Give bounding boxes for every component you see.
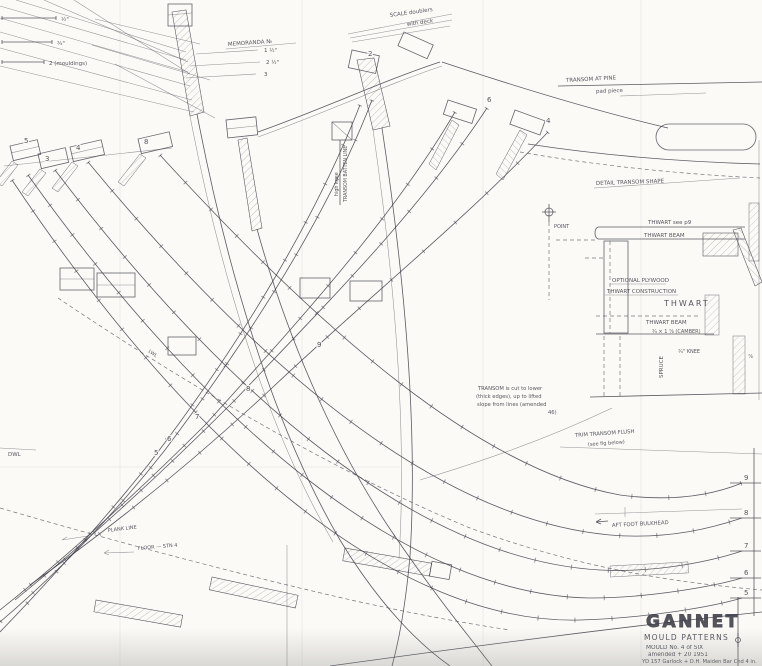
lofting-drawing: ½" ¾" 2 (mouldings) MEMORANDA № 1 ½" 2 ½… (0, 0, 762, 666)
thwart-construction-label: THWART CONSTRUCTION (606, 289, 676, 295)
edge-number-8: 8 (744, 509, 748, 517)
mould-pattern-curves-left (0, 100, 612, 632)
transom-cut-note: TRANSOM is cut to lower (thick edges), u… (476, 386, 557, 416)
trim-transom-note: TRIM TRANSOM FLUSH (see fig below) (560, 429, 762, 454)
cut-note-line1: TRANSOM is cut to lower (477, 386, 543, 392)
drawing-title: GANNET (646, 612, 740, 632)
memoranda-item-2: 2 ½" (266, 59, 279, 66)
plank-line-label: PLANK LINE (108, 524, 138, 534)
dimension-note-half-inch: ½" (61, 16, 69, 23)
cut-note-line3: slope from lines (amended (477, 402, 546, 408)
curve-number-6: 6 (167, 435, 172, 443)
curve-number-9: 9 (317, 341, 321, 349)
head-number-4b: 4 (546, 117, 551, 125)
thwart-see-label: THWART see p9 (647, 220, 692, 226)
pad-piece-label: pad piece (596, 88, 624, 95)
trim-note-line1: TRIM TRANSOM FLUSH (574, 429, 635, 439)
mould-strip-3 (226, 62, 668, 666)
memoranda-block: MEMORANDA № 1 ½" 2 ½" 3 (186, 39, 296, 78)
edge-number-9: 9 (744, 474, 748, 482)
knee-label: ¾" KNEE (678, 349, 700, 355)
transom-blank-detail: DETAIL TRANSOM SHAPE (520, 124, 760, 188)
scale-note-line1: SCALE doublers (389, 7, 433, 19)
head-number-6: 6 (487, 96, 492, 104)
cut-note-line4: 46) (548, 410, 557, 416)
aft-foot-bulkhead-label: AFT FOOT BULKHEAD (612, 520, 669, 529)
thwart-beam-size-label1: THWART BEAM (645, 320, 687, 326)
edge-number-7: 7 (744, 542, 748, 550)
mould-pattern-curves-right (12, 155, 762, 666)
edge-number-5: 5 (744, 589, 748, 597)
memoranda-heading: MEMORANDA № (228, 39, 273, 48)
waterlines: LWL DWL (0, 298, 762, 630)
paper-creases (0, 0, 641, 666)
curve-number-7: 7 (195, 413, 199, 421)
transom-at-pine-note: TRANSOM AT PINE pad piece (558, 75, 762, 96)
mould-patterns-drawing-sheet: ½" ¾" 2 (mouldings) MEMORANDA № 1 ½" 2 ½… (0, 0, 762, 666)
transom-at-pine-label: TRANSOM AT PINE (565, 75, 617, 84)
drawing-subtitle: MOULD PATTERNS (644, 633, 729, 642)
head-number-8: 8 (144, 138, 148, 146)
title-line5: YD 157 Garlock + D.H. Maiden Bar Chd 4 i… (641, 659, 757, 665)
title-line3: MOULD No. 4 of SIX (646, 645, 703, 651)
head-number-3: 3 (45, 155, 49, 163)
dimension-note-three-quarter: ¾" (57, 41, 65, 47)
floor-stn-label: FLOOR — STN 4 (138, 543, 178, 552)
construction-line-fan (0, 0, 194, 112)
dimension-note-moulding: 2 (mouldings) (49, 61, 87, 67)
edge-number-6: 6 (744, 569, 749, 577)
mould-heads-top-left: 5 3 4 8 (0, 132, 173, 196)
dwl-label: DWL (8, 452, 22, 458)
seven-eighths-label: ⅞ (748, 354, 753, 360)
head-number-4: 4 (76, 144, 81, 152)
spruce-label: SPRUCE (659, 356, 665, 378)
mould-strip-2: 2 (348, 50, 412, 666)
title-line4: amended + 20 1951 (648, 652, 708, 658)
memoranda-item-1: 1 ½" (264, 47, 277, 54)
thwart-beam-top-label: THWART BEAM (643, 233, 685, 239)
head-number-5: 5 (24, 137, 28, 145)
memoranda-item-3: 3 (264, 72, 268, 78)
optional-plywood-label: OPTIONAL PLYWOOD (612, 278, 669, 284)
lwl-label: LWL (147, 349, 159, 360)
point-label: POINT (554, 224, 570, 230)
bottom-mould-feet (94, 546, 689, 627)
thwart-beam-size-label2: ¾ × 1 ⅞ (CAMBER) (652, 329, 701, 335)
thwart-label: THWART (663, 299, 710, 308)
curve-number-5: 5 (154, 449, 158, 457)
curve-number-8: 8 (246, 385, 250, 393)
cut-note-line2: (thick edges), up to lifted (476, 394, 542, 400)
scale-note-line2: with deck (406, 18, 434, 28)
thwart-construction-detail: THWART see p9 THWART BEAM OPTIONAL PLYWO… (542, 203, 762, 397)
trim-note-line2: (see fig below) (588, 439, 625, 448)
aft-foot-bulkhead-note: AFT FOOT BULKHEAD (595, 507, 742, 529)
transom-batten-line-label: TRANSOM BATTEN LINE (343, 146, 349, 203)
curve-station-numbers: 9 8 7 6 5 (154, 341, 321, 457)
pattern-reference-boxes (60, 268, 382, 355)
mould-heads-upper-right: 6 4 (398, 32, 551, 180)
head-number-2: 2 (368, 50, 372, 58)
scale-note: SCALE doublers with deck (348, 7, 452, 42)
